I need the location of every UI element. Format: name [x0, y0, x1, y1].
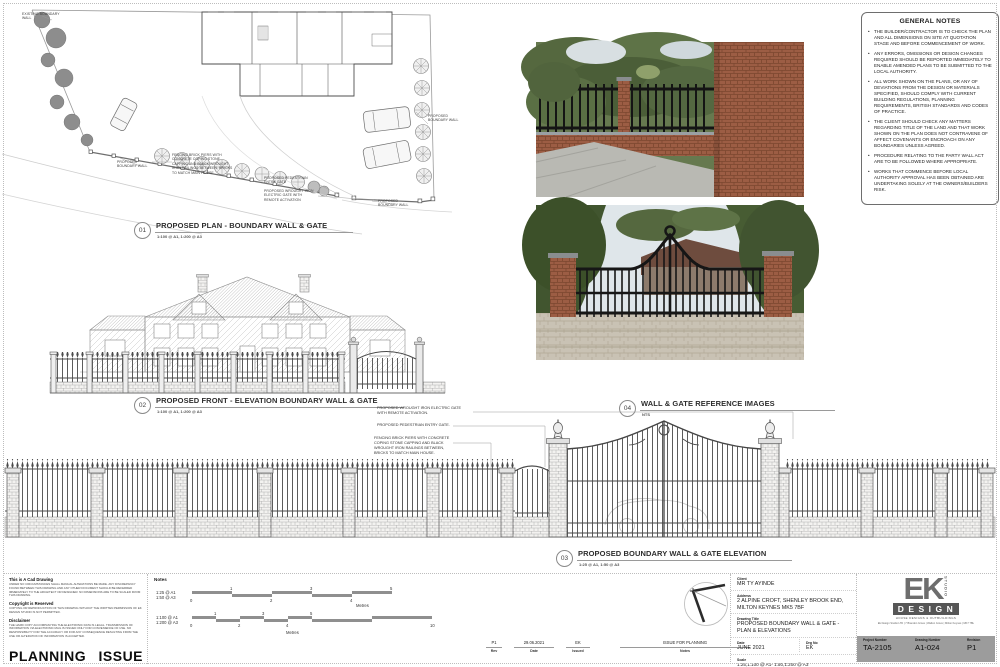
tick: 1 — [230, 586, 233, 591]
drawing-number-label: Drawing Number — [915, 638, 961, 642]
general-note-item: THE BUILDER/CONTRACTOR IS TO CHECK THE P… — [868, 29, 992, 47]
scalebar1-unit: Metres — [356, 603, 369, 608]
notes-label: Notes — [154, 577, 167, 582]
elevation-railings-right — [785, 459, 989, 517]
revision-issued-header: Issued — [566, 648, 590, 653]
scalebar2 — [192, 616, 432, 622]
north-arrow — [680, 578, 732, 630]
tick: 5 — [310, 611, 313, 616]
tick: 4 — [286, 623, 289, 628]
general-note-item: ALL WORK SHOWN ON THE PLANS, OR ANY OF D… — [868, 79, 992, 115]
front-elevation-drawing — [50, 262, 445, 394]
drawing-scale-03: 1:25 @ A1, 1:50 @ A3 — [579, 562, 792, 567]
revision-table: P1 Rev 29.06.2021 Date EK Issued ISSUE F… — [486, 640, 762, 653]
tick: 3 — [262, 611, 265, 616]
photo-brick-pier — [714, 42, 804, 197]
revision-label: Revision — [967, 638, 995, 642]
wall-gate-elevation-drawing — [5, 405, 995, 550]
drawing-title-line1: PROPOSED BOUNDARY WALL & GATE - — [737, 621, 856, 628]
reference-photo-wall — [536, 42, 804, 197]
elev-note-fencing: FENCING BRICK PIERS WITH CONCRETE COPING… — [374, 436, 454, 456]
tick: 1 — [214, 611, 217, 616]
revision-rev-header: Rev — [486, 648, 502, 653]
scalebar1-a3: 1:50 @ A3 — [156, 595, 176, 600]
plan-note-pedestrian-gate: PROPOSED PEDESTRIAN ENTRY GATE — [264, 176, 318, 185]
divider — [147, 574, 148, 664]
date-value: JUNE 2021 — [737, 645, 799, 652]
drawing-sheet: EXISTING BOUNDARY WALL PROPOSED BOUNDARY… — [0, 0, 1000, 667]
revision-value: P1 — [967, 643, 995, 652]
scale-bars: 1:25 @ A1 1:50 @ A3 0 1 2 3 4 5 Metres 1… — [156, 586, 486, 638]
tick: 3 — [310, 586, 313, 591]
ek-logo-tagline: HOUSE DESIGNS & OUTBUILDINGS — [896, 616, 957, 620]
logo-block: EK STUDIO DESIGN HOUSE DESIGNS & OUTBUIL… — [857, 574, 995, 662]
plan-note-proposed-wall-right: PROPOSED BOUNDARY WALL — [428, 114, 468, 123]
drawing-number-value: A1-024 — [915, 643, 961, 652]
general-note-item: ANY ERRORS, OMISSIONS OR DESIGN CHANGES … — [868, 51, 992, 75]
title-block: Client MR TY AYINDE Address 2 ALPINE CRO… — [731, 574, 856, 667]
ek-logo-studio: STUDIO — [944, 576, 949, 597]
drawing-scale-01: 1:100 @ A1, 1:200 @ A3 — [157, 234, 353, 239]
tick: 2 — [238, 623, 241, 628]
disclaimer-title: Disclaimer — [9, 618, 143, 623]
tick: 10 — [430, 623, 435, 628]
drawing-title-03: PROPOSED BOUNDARY WALL & GATE ELEVATION — [577, 549, 792, 561]
drawing-number-01: 01 — [134, 222, 151, 239]
disclaimer-body: THE HARD COPY ACCOMPANYING THE ELECTRONI… — [9, 624, 143, 639]
client-value: MR TY AYINDE — [737, 581, 856, 588]
existing-trees — [34, 12, 93, 146]
scale-value: 1:25,1:100 @ A1- 1:50,1:200 @ A3 — [737, 662, 856, 667]
elevation-main-gate — [567, 421, 761, 537]
ek-logo-design: DESIGN — [893, 603, 960, 615]
reference-photo-gate — [536, 205, 804, 360]
drawing-title-line2: PLAN & ELEVATIONS — [737, 628, 856, 635]
address-line1: 2 ALPINE CROFT, SHENLEY BROOK END, — [737, 598, 856, 605]
plan-note-existing-wall: EXISTING BOUNDARY WALL — [22, 12, 64, 21]
drawing-numbers-bar: Project Number TA-2105 Drawing Number A1… — [857, 636, 995, 662]
planning-issue-stamp: PLANNING ISSUE — [9, 648, 143, 664]
general-note-item: WORKS THAT COMMENCE BEFORE LOCAL AUTHORI… — [868, 169, 992, 193]
general-note-item: PROCEDURE RELATING TO THE PARTY WALL ACT… — [868, 153, 992, 165]
revision-date-header: Date — [514, 648, 554, 653]
elev-note-pedestrian-gate: PROPOSED PEDESTRIAN ENTRY GATE. — [377, 423, 469, 428]
drawing-title-01: PROPOSED PLAN - BOUNDARY WALL & GATE — [155, 221, 353, 233]
project-number-label: Project Number — [863, 638, 909, 642]
drg-no-value: EK — [806, 645, 818, 652]
scalebar2-unit: Metres — [286, 630, 299, 635]
elev-note-electric-gate: PROPOSED WROUGHT IRON ELECTRIC GATE WITH… — [377, 406, 469, 416]
general-notes-title: GENERAL NOTES — [868, 18, 992, 25]
elevation-pedestrian-gate — [515, 466, 549, 517]
ek-logo-address: Ek Design Studio LTD | 7 Brandon Grove |… — [878, 622, 974, 625]
tick: 0 — [190, 598, 193, 603]
tick: 0 — [190, 623, 193, 628]
tick: 2 — [270, 598, 273, 603]
tick: 5 — [390, 586, 393, 591]
general-note-item: THE CLIENT SHOULD CHECK ANY MATTERS REGA… — [868, 119, 992, 149]
revision-issued: EK — [566, 640, 590, 648]
copyright-body: COPYING OR REPRODUCTION OF THIS DRAWING … — [9, 607, 143, 615]
drawing-label-03: 03 PROPOSED BOUNDARY WALL & GATE ELEVATI… — [556, 549, 792, 567]
plan-note-electric-gate: PROPOSED WROUGHT IRON ELECTRIC GATE WITH… — [264, 189, 318, 202]
general-notes-panel: GENERAL NOTES THE BUILDER/CONTRACTOR IS … — [861, 12, 999, 205]
scalebar1 — [192, 591, 392, 597]
legal-panel: This is A Cad Drawing UNDER NO CIRCUMSTA… — [9, 574, 143, 664]
house-footprint — [202, 12, 392, 96]
address-line2: MILTON KEYNES MK5 7BF — [737, 605, 856, 612]
scalebar2-a3: 1:200 @ A3 — [156, 620, 179, 625]
tick: 4 — [350, 598, 353, 603]
drawing-label-01: 01 PROPOSED PLAN - BOUNDARY WALL & GATE … — [134, 221, 353, 239]
title-band: This is A Cad Drawing UNDER NO CIRCUMSTA… — [4, 573, 997, 664]
photo-driveway — [536, 313, 804, 360]
project-number-value: TA-2105 — [863, 643, 909, 652]
ek-logo: EK — [903, 576, 942, 602]
plan-note-proposed-wall-bottom: PROPOSED BOUNDARY WALL — [378, 199, 416, 208]
drawing-number-03: 03 — [556, 550, 573, 567]
revision-date: 29.06.2021 — [514, 640, 554, 648]
cad-drawing-body: UNDER NO CIRCUMSTANCES SHALL MANUAL ALTE… — [9, 583, 143, 598]
revision-rev: P1 — [486, 640, 502, 648]
plan-note-fencing: FENCING BRICK PIERS WITH CONCRETE COPING… — [172, 153, 234, 175]
plan-note-proposed-wall-left: PROPOSED BOUNDARY WALL — [117, 160, 155, 169]
